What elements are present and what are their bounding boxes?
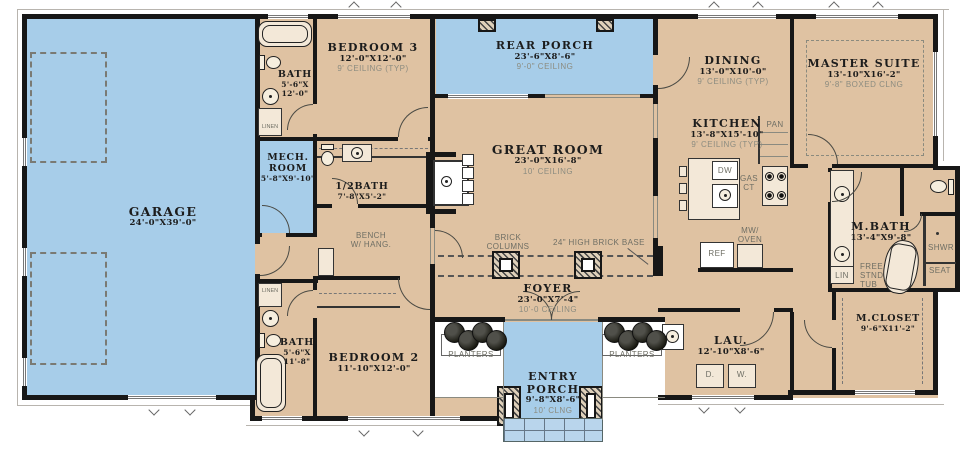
window	[448, 94, 528, 99]
planters-label-left: PLANTERS	[448, 350, 493, 359]
window	[933, 52, 938, 136]
brick-column	[492, 251, 520, 279]
sink-icon	[262, 310, 279, 327]
annotation-text: OVEN	[738, 235, 762, 244]
oven-cabinet-icon	[737, 244, 763, 268]
fireplace-icon	[426, 152, 433, 214]
window	[22, 138, 27, 166]
brick-base-label: 24" HIGH BRICK BASE	[553, 238, 645, 247]
room-name: REAR PORCH	[496, 40, 594, 53]
mw-oven-label: MW/ OVEN	[738, 226, 762, 244]
window	[348, 416, 460, 421]
annotation-text: TUB	[860, 280, 883, 289]
room-dim: 13'-0"X10'-0"	[697, 68, 768, 78]
room-label-bath-upper: BATH 5'-6"X 12'-0"	[278, 70, 312, 98]
washer-label: W.	[737, 370, 747, 379]
swing-mark	[872, 1, 883, 12]
room-name: GREAT ROOM	[492, 143, 604, 157]
brick-base-line	[438, 275, 653, 277]
annotation-text: COLUMNS	[487, 242, 530, 251]
door-opening	[332, 204, 358, 208]
window	[692, 395, 754, 400]
toilet-bowl	[266, 334, 281, 347]
foundation-line	[17, 405, 253, 406]
tub-icon	[258, 21, 312, 47]
wall	[790, 312, 794, 395]
toilet-tank	[259, 55, 265, 70]
stool-icon	[679, 166, 687, 177]
sink-icon	[351, 147, 363, 159]
room-name: BEDROOM 2	[329, 352, 420, 365]
pantry-label: PAN	[766, 120, 783, 129]
room-label-kitchen: KITCHEN 13'-8"X15'-10" 9' CEILING (TYP)	[690, 118, 763, 150]
room-label-bedroom3: BEDROOM 3 12'-0"X12'-0" 9' CEILING (TYP)	[328, 42, 419, 74]
bench-label: BENCH W/ HANG.	[351, 231, 392, 249]
door-opening	[313, 290, 317, 318]
annotation-text: W/ HANG.	[351, 240, 392, 249]
swing-mark	[348, 1, 359, 12]
room-name: DINING	[697, 55, 768, 68]
window	[262, 416, 302, 421]
porch-edge	[435, 397, 503, 398]
room-dim: 11'-8"	[280, 358, 314, 367]
room-ceiling: 9'-0" CEILING	[496, 62, 594, 71]
burner-icon	[765, 172, 774, 181]
floor-plan: GARAGE 24'-0"X39'-0" BATH 5'-6"X 12'-0" …	[0, 0, 970, 458]
sink-icon	[834, 246, 850, 262]
room-dim: 13'-10"X16'-2"	[807, 71, 920, 81]
fireplace-icon	[426, 152, 456, 157]
linen-label-lower: LINEN	[262, 288, 278, 294]
room-label-master-closet: M.CLOSET 9'-6"X11'-2"	[856, 314, 920, 334]
linen-label-upper: LINEN	[262, 124, 278, 130]
room-label-entry-porch: ENTRY PORCH 9'-8"X8'-6" 10' CLNG	[526, 371, 581, 415]
swing-mark	[752, 1, 763, 12]
shower-head-dot	[936, 232, 939, 235]
burner-icon	[777, 172, 786, 181]
room-dim: 13'-4"X9'-8"	[851, 234, 912, 244]
sink-icon	[719, 189, 731, 201]
cased-opening	[545, 94, 640, 98]
room-dim: 12'-0"X12'-0"	[328, 55, 419, 65]
room-dim: 9'-6"X11'-2"	[856, 325, 920, 334]
window	[855, 390, 915, 395]
free-tub-label: FREE STND TUB	[860, 262, 883, 290]
dishwasher-label: DW	[718, 166, 732, 175]
entry-steps	[503, 418, 603, 442]
room-dim: 23'-0"X7'-4"	[518, 296, 579, 306]
room-label-garage: GARAGE 24'-0"X39'-0"	[129, 205, 197, 229]
swing-mark	[708, 1, 719, 12]
foundation-line	[17, 9, 18, 406]
toilet-tank	[321, 144, 334, 150]
door-opening	[262, 233, 286, 237]
door-opening	[808, 164, 832, 168]
annotation-text: GAS	[740, 174, 758, 183]
shower-seat-line	[923, 262, 956, 264]
room-dim: 9'-8"X8'-6"	[526, 396, 581, 406]
room-name: M.BATH	[851, 221, 912, 234]
foundation-line	[943, 9, 944, 161]
room-dim: 23'-6"X8'-6"	[496, 53, 594, 63]
annotation-text: BRICK	[487, 233, 530, 242]
window	[22, 248, 27, 276]
room-label-bath-lower: BATH 5'-6"X 11'-8"	[280, 338, 314, 366]
window	[22, 358, 27, 386]
room-ceiling: 10'-0 CEILING	[518, 305, 579, 314]
wall	[790, 19, 794, 168]
annotation-text: BENCH	[351, 231, 392, 240]
garage-dashed-bay	[30, 252, 107, 365]
brick-columns-label: BRICK COLUMNS	[487, 233, 530, 251]
wall	[433, 317, 505, 322]
window	[128, 395, 216, 400]
room-label-rear-porch: REAR PORCH 23'-6"X8'-6" 9'-0" CEILING	[496, 40, 594, 72]
toilet-icon	[320, 144, 336, 168]
shower-seat-label: SEAT	[929, 266, 951, 275]
toilet-tank	[259, 333, 265, 348]
door-opening	[832, 320, 836, 348]
room-name: GARAGE	[129, 205, 197, 219]
annotation-text: STND	[860, 271, 883, 280]
burner-icon	[765, 191, 774, 200]
brick-column	[574, 251, 602, 279]
room-dim: 12'-0"	[278, 90, 312, 99]
closet-rod-line	[922, 298, 923, 384]
porch-post	[596, 19, 614, 32]
cooktop-icon	[762, 166, 788, 206]
room-name: FOYER	[518, 283, 579, 296]
brick-column-core	[581, 258, 595, 272]
wall	[900, 168, 904, 216]
room-label-bedroom2: BEDROOM 2 11'-10"X12'-0"	[329, 352, 420, 374]
toilet-bowl	[266, 56, 281, 69]
room-dim: 5'-8"X9'-10"	[261, 175, 315, 184]
fireplace-cabinet	[462, 193, 474, 205]
gas-cooktop-label: GAS CT	[740, 174, 758, 192]
wall	[933, 288, 938, 395]
fireplace-flue	[441, 176, 452, 187]
window	[698, 14, 776, 19]
pantry-shelf	[760, 156, 788, 157]
fireplace-icon	[426, 209, 456, 214]
room-name: LAU.	[697, 335, 764, 348]
room-label-laundry: LAU. 12'-10"X8'-6"	[697, 335, 764, 357]
garage-dashed-bay	[30, 52, 107, 163]
room-label-great-room: GREAT ROOM 23'-0"X16'-8" 10' CEILING	[492, 143, 604, 176]
stool-icon	[679, 200, 687, 211]
room-ceiling: 9' CEILING (TYP)	[697, 77, 768, 86]
swing-mark	[184, 404, 195, 415]
foundation-line	[17, 9, 949, 10]
room-name: MASTER SUITE	[807, 58, 920, 71]
cased-opening	[653, 196, 658, 238]
room-label-foyer: FOYER 23'-0"X7'-4" 10'-0 CEILING	[518, 283, 579, 315]
room-label-master-suite: MASTER SUITE 13'-10"X16'-2" 9'-8" BOXED …	[807, 58, 920, 90]
dryer-label: D.	[706, 370, 715, 379]
room-name: BEDROOM 3	[328, 42, 419, 55]
burner-icon	[777, 191, 786, 200]
entry-porch-column-core	[504, 393, 514, 419]
pantry-shelf	[760, 144, 788, 145]
room-ceiling: 9' CEILING (TYP)	[328, 64, 419, 73]
window	[268, 14, 308, 19]
sink-icon	[666, 330, 679, 343]
room-name: ENTRY	[526, 371, 581, 384]
lin-label: LIN	[835, 271, 849, 280]
toilet-bowl	[321, 151, 334, 166]
porch-post	[478, 19, 496, 32]
brick-base-line	[438, 255, 653, 257]
closet-front-line	[317, 306, 400, 308]
shower-label: SHWR	[928, 243, 954, 252]
window	[816, 14, 898, 19]
wall	[936, 288, 960, 292]
room-label-master-bath: M.BATH 13'-4"X9'-8"	[851, 221, 912, 243]
brick-column-core	[499, 258, 513, 272]
wall	[22, 14, 27, 400]
porch-edge	[603, 397, 665, 398]
room-dim: 13'-8"X15'-10"	[690, 131, 763, 141]
entry-porch-column-core	[586, 393, 596, 419]
toilet-tank	[948, 179, 954, 195]
linen-cabinet	[258, 283, 282, 307]
swing-mark	[358, 425, 369, 436]
foundation-line	[246, 425, 504, 426]
door-opening	[398, 137, 428, 141]
fireplace-cabinet	[462, 180, 474, 192]
pantry-shelf	[760, 132, 788, 133]
swing-mark	[828, 1, 839, 12]
wall	[698, 268, 793, 272]
annotation-text: CT	[740, 183, 758, 192]
swing-mark	[390, 1, 401, 12]
swing-mark	[412, 425, 423, 436]
room-dim: 23'-0"X16'-8"	[492, 157, 604, 167]
annotation-text: MW/	[738, 226, 762, 235]
room-ceiling: 9'-8" BOXED CLNG	[807, 80, 920, 89]
bush-icon	[486, 330, 507, 351]
room-dim: 7'-8"X5'-2"	[335, 193, 388, 202]
linen-cabinet	[258, 108, 282, 136]
room-dim: 24'-0"X39'-0"	[129, 219, 197, 229]
fireplace-cabinet	[462, 167, 474, 179]
planters-label-right: PLANTERS	[609, 350, 654, 359]
fireplace-cabinet	[462, 154, 474, 166]
toilet-bowl	[930, 180, 947, 193]
room-dim: 11'-10"X12'-0"	[329, 365, 420, 375]
annotation-text: FREE	[860, 262, 883, 271]
room-label-half-bath: 1/2BATH 7'-8"X5'-2"	[335, 182, 388, 202]
window	[338, 14, 410, 19]
bush-icon	[646, 330, 667, 351]
room-ceiling: 9' CEILING (TYP)	[690, 140, 763, 149]
closet-rod-line	[319, 293, 396, 294]
sink-icon	[262, 88, 279, 105]
door-opening	[313, 104, 317, 134]
room-label-dining: DINING 13'-0"X10'-0" 9' CEILING (TYP)	[697, 55, 768, 87]
toilet-icon	[930, 178, 956, 196]
wall	[313, 276, 400, 280]
stool-icon	[679, 183, 687, 194]
room-label-mech-room: MECH. ROOM 5'-8"X9'-10"	[261, 153, 315, 183]
swing-mark	[148, 404, 159, 415]
room-ceiling: 10' CLNG	[526, 406, 581, 415]
wall	[653, 246, 663, 276]
room-dim: 12'-10"X8'-6"	[697, 348, 764, 358]
room-ceiling: 10' CEILING	[492, 167, 604, 176]
wall	[598, 317, 665, 322]
fridge-label: REF	[708, 249, 725, 258]
shower-wall	[923, 216, 926, 286]
closet-rod-line	[842, 298, 843, 384]
room-name: KITCHEN	[690, 118, 763, 131]
mud-bench	[318, 248, 334, 276]
cased-opening	[653, 104, 658, 138]
